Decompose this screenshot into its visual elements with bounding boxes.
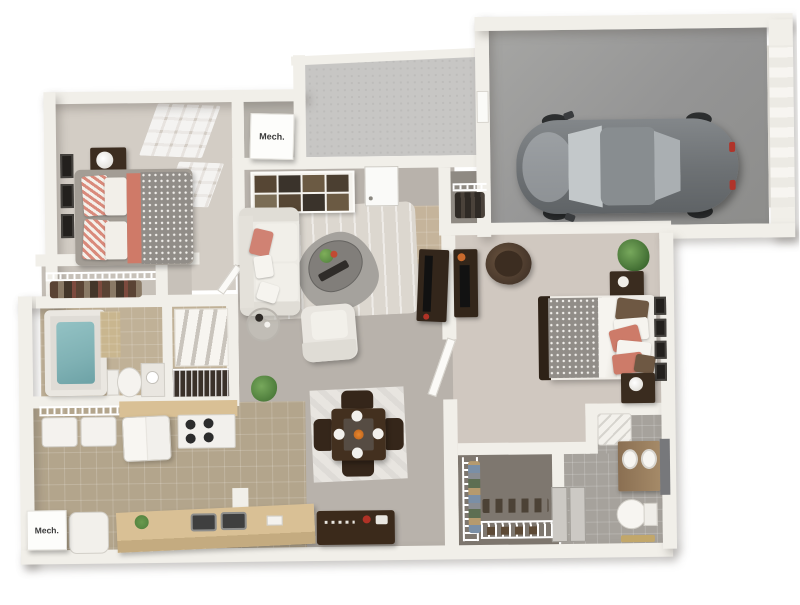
table-lamp — [96, 151, 113, 168]
bed2-duvet — [548, 298, 603, 379]
dryer — [80, 416, 116, 446]
dining-chair-left — [313, 419, 331, 451]
coat-closet-shelf — [453, 183, 487, 191]
cubby-cell — [254, 175, 276, 192]
wall-bedroom2-bottom — [458, 442, 590, 456]
papasan-cushion — [494, 251, 522, 277]
kitchen-sink-basin — [221, 512, 247, 530]
picture-frame — [654, 319, 666, 337]
place-setting — [351, 410, 362, 421]
patio-concrete — [299, 57, 478, 157]
closet2-shoes — [487, 526, 543, 535]
brown-pillow — [633, 354, 656, 375]
place-setting — [352, 447, 363, 458]
refrigerator — [122, 415, 172, 462]
picture-frame — [655, 341, 667, 359]
linen-shelves — [174, 308, 229, 367]
front-door-knob — [369, 196, 373, 200]
nightstand-decor — [618, 276, 629, 287]
stove-burner — [203, 418, 213, 428]
buffet-knobs — [325, 521, 355, 524]
white-pillow — [104, 177, 126, 215]
stove-burner — [185, 420, 195, 430]
vanity-sink — [641, 449, 657, 469]
towel — [621, 535, 655, 542]
centerpiece — [354, 429, 364, 439]
car-taillight — [730, 180, 736, 190]
tv-console — [416, 249, 449, 322]
wall-closet2-divider — [552, 450, 564, 490]
wall-coat-closet-left — [438, 167, 451, 235]
mech-lower-label: Mech. — [35, 525, 59, 535]
stove-burner — [204, 432, 214, 442]
wire-rack-cabinet — [173, 368, 229, 397]
white-throw-pillow — [253, 254, 274, 278]
cubby-cell — [327, 194, 349, 211]
mech-closet-lower-unit: Mech. — [27, 510, 67, 550]
picture-frame — [61, 214, 74, 238]
counter-items — [267, 515, 283, 525]
garage-side-door — [476, 91, 488, 123]
coffee-table-flowers-red — [330, 251, 337, 258]
wall-patio-left — [293, 55, 306, 169]
mech-upper-label: Mech. — [259, 131, 285, 142]
bathtub-water — [56, 322, 95, 384]
car-rear-window — [654, 131, 681, 201]
washer — [41, 417, 77, 447]
corner-plant — [617, 239, 649, 271]
picture-frame — [655, 363, 667, 381]
console-red-item — [423, 314, 429, 320]
picture-frame — [61, 184, 74, 208]
mech-closet-upper-unit: Mech. — [249, 113, 294, 160]
cubby-cell — [303, 194, 325, 211]
coat-closet-clothes — [455, 192, 485, 218]
kitchen-sink-basin — [191, 513, 217, 531]
side-table-bottle — [255, 314, 263, 322]
white-pillow — [105, 221, 127, 259]
dining-chair-right — [385, 418, 403, 450]
toilet-tank — [643, 503, 657, 526]
car-taillight — [729, 142, 735, 152]
place-setting — [373, 428, 384, 439]
laundry-wire-shelf — [39, 405, 119, 416]
table-lamp — [629, 377, 643, 391]
car-windshield — [568, 126, 603, 208]
wall-garage-bottom — [659, 223, 795, 239]
closet2-door-right — [569, 487, 586, 542]
bathroom1-sink — [146, 371, 159, 384]
sofa-back — [239, 216, 254, 308]
dining-chair-bottom — [342, 458, 374, 476]
toilet-bowl — [117, 367, 142, 397]
vanity-mirror — [660, 439, 671, 495]
utility-appliance — [69, 512, 110, 554]
buffet-red-decanter — [363, 515, 371, 523]
picture-frame — [60, 154, 73, 178]
wall-bedroom2-left-lower — [443, 399, 459, 547]
counter-plant — [135, 515, 149, 529]
closet2-shoe-row — [482, 498, 548, 513]
side-table-glass — [264, 322, 270, 328]
car-roof — [600, 127, 657, 206]
dresser-orange-decor — [457, 253, 465, 261]
floor-plan: Mech. Mech. — [0, 0, 800, 605]
stove-burner — [186, 434, 196, 444]
place-setting — [334, 429, 345, 440]
cubby-cell — [326, 175, 348, 192]
garage-door — [767, 45, 795, 207]
wall-right-outer — [659, 233, 677, 549]
closet1-clothes — [50, 280, 142, 298]
cubby-cell — [278, 175, 300, 192]
bed1-duvet — [140, 172, 193, 265]
vanity-sink — [622, 449, 638, 469]
picture-frame — [654, 297, 666, 315]
car-hood-highlight — [522, 132, 575, 203]
closet2-door-left — [551, 487, 568, 542]
dining-chair-top — [341, 390, 373, 408]
armchair-cushion — [310, 309, 348, 340]
cubby-cell — [302, 175, 324, 192]
dresser-tv — [460, 265, 471, 307]
buffet-dish — [376, 515, 388, 524]
tub-surround-tile — [100, 311, 121, 357]
closet2-hanging-clothes — [468, 461, 481, 533]
